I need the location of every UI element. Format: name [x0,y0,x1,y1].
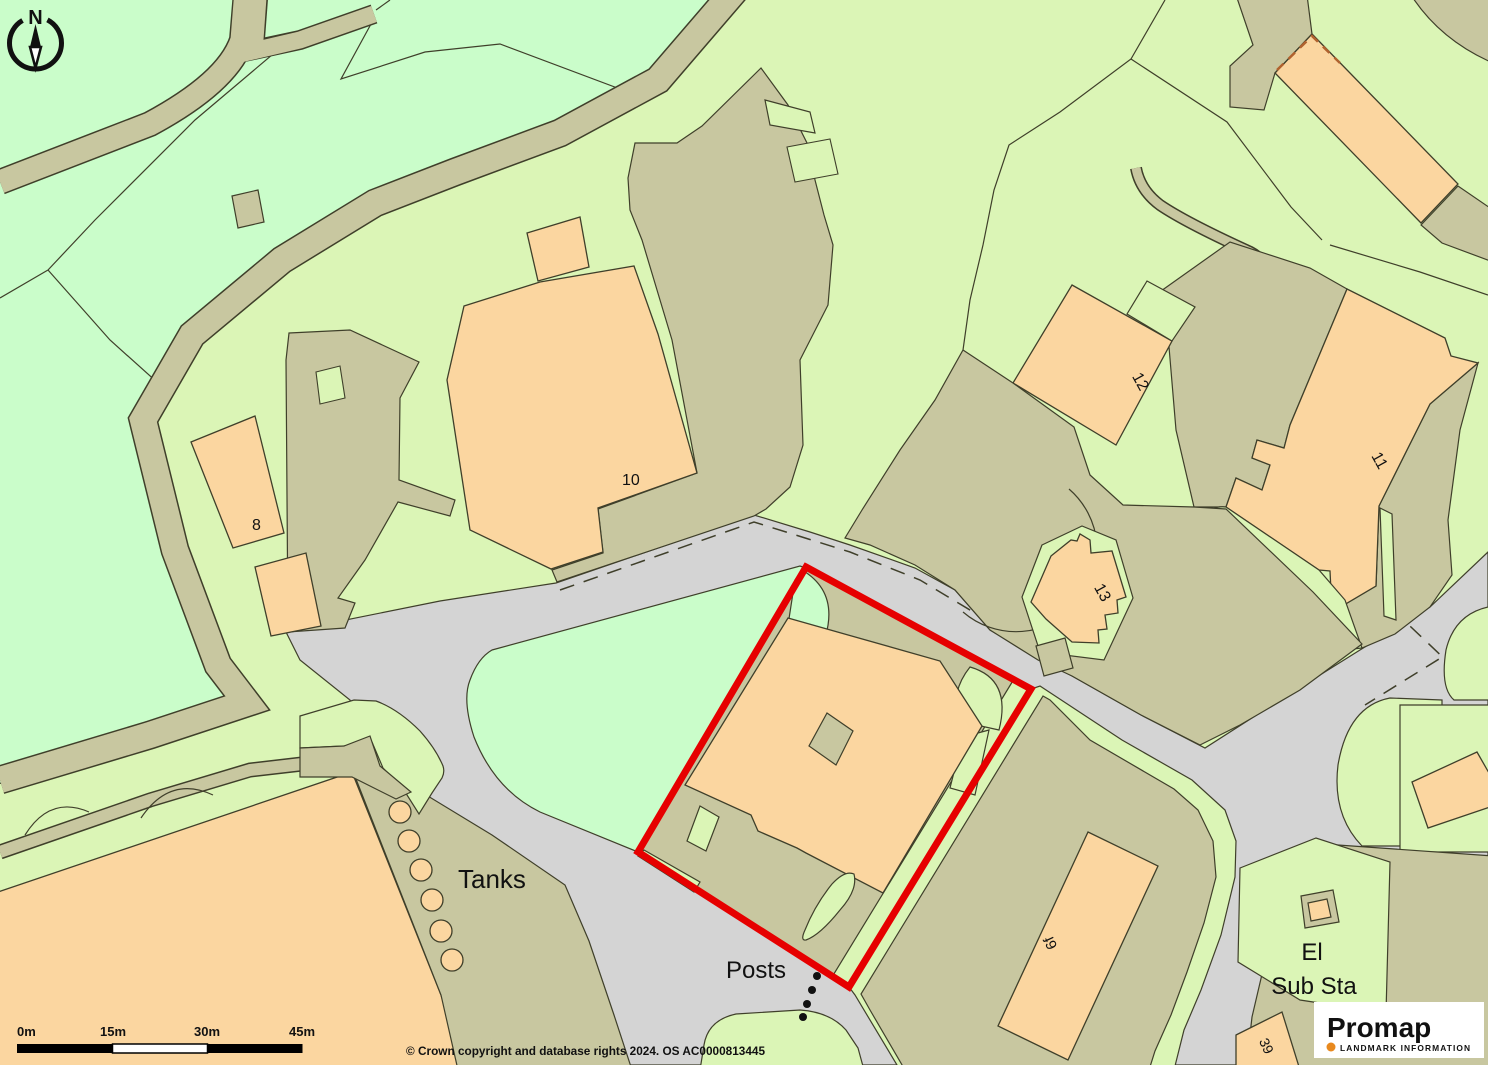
svg-text:LANDMARK INFORMATION: LANDMARK INFORMATION [1340,1043,1471,1053]
svg-text:© Crown copyright and database: © Crown copyright and database rights 20… [406,1044,765,1058]
svg-text:15m: 15m [100,1024,126,1039]
svg-text:8: 8 [252,517,261,534]
svg-text:10: 10 [622,472,640,489]
svg-text:45m: 45m [289,1024,315,1039]
svg-text:Tanks: Tanks [458,864,526,894]
svg-text:Sub Sta: Sub Sta [1271,973,1357,1000]
svg-text:Posts: Posts [726,957,786,984]
svg-text:El: El [1301,939,1322,966]
svg-text:Promap: Promap [1327,1012,1431,1043]
svg-text:0m: 0m [17,1024,36,1039]
svg-text:30m: 30m [194,1024,220,1039]
